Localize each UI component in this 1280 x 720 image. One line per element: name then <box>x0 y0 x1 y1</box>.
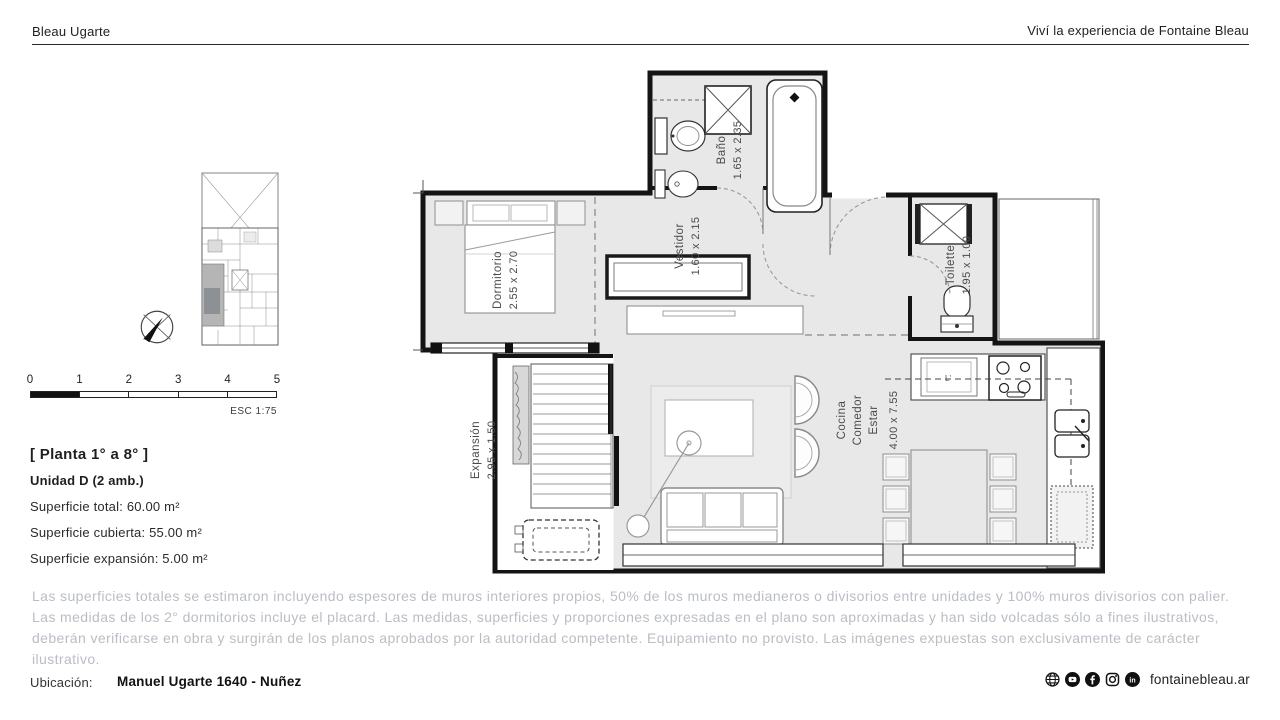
surface-total: Superficie total: 60.00 m² <box>30 499 180 514</box>
linkedin-icon[interactable]: in <box>1125 672 1140 687</box>
scale-tick-1: 1 <box>76 374 82 386</box>
dining-table <box>911 450 987 550</box>
dims-vestidor: 1.60 x 2.15 <box>690 217 702 276</box>
dims-toilette: 1.95 x 1.00 <box>961 236 973 295</box>
brand-name: Bleau Ugarte <box>32 24 110 39</box>
scale-tick-3: 3 <box>175 374 181 386</box>
instagram-icon[interactable] <box>1105 672 1120 687</box>
floor-plan: L' <box>405 58 1105 578</box>
pantry-cabinet <box>1051 486 1093 548</box>
scale-bar: 0 1 2 3 4 5 ESC 1:75 <box>30 374 277 417</box>
compass-icon <box>136 306 178 348</box>
palier-hall <box>999 199 1099 339</box>
scale-bar-numbers: 0 1 2 3 4 5 <box>30 374 277 388</box>
page: Bleau Ugarte Viví la experiencia de Font… <box>0 0 1280 720</box>
bedroom-window <box>431 343 599 353</box>
planter <box>513 366 529 464</box>
sideboard <box>627 306 803 334</box>
label-vestidor: Vestidor <box>674 223 686 269</box>
website-url[interactable]: fontainebleau.ar <box>1150 672 1250 687</box>
location-label: Ubicación: <box>30 675 93 690</box>
header-tagline: Viví la experiencia de Fontaine Bleau <box>1027 23 1249 38</box>
kitchen-sink-cabinet: L' <box>921 358 977 396</box>
living-windows <box>623 544 1075 566</box>
scale-tick-5: 5 <box>274 374 280 386</box>
ac-unit <box>515 520 599 560</box>
expansion-balcony <box>497 354 619 570</box>
toilet <box>655 118 705 154</box>
shower-sink <box>705 86 751 134</box>
floor-range-title: [ Planta 1° a 8° ] <box>30 446 148 463</box>
scale-bar-ruler <box>30 391 277 398</box>
svg-text:in: in <box>1129 677 1135 684</box>
dims-dormitorio: 2.55 x 2.70 <box>508 251 520 310</box>
label-dormitorio: Dormitorio <box>492 251 504 309</box>
bidet <box>655 170 698 198</box>
scale-tick-4: 4 <box>224 374 230 386</box>
unit-title: Unidad D (2 amb.) <box>30 473 144 488</box>
sofa <box>661 488 783 546</box>
key-plan-thumbnail <box>188 170 288 348</box>
bathtub <box>767 80 822 212</box>
scale-esc-label: ESC 1:75 <box>30 406 277 417</box>
label-expansion: Expansión <box>470 421 482 479</box>
website-icon[interactable] <box>1045 672 1060 687</box>
label-comedor: Comedor <box>852 395 864 446</box>
scale-tick-2: 2 <box>126 374 132 386</box>
label-banio: Baño <box>716 136 728 165</box>
youtube-icon[interactable] <box>1065 672 1080 687</box>
nightstand-right <box>557 201 585 225</box>
label-cocina: Cocina <box>836 401 848 440</box>
social-links: in fontainebleau.ar <box>1045 672 1250 687</box>
dims-banio: 1.65 x 2.35 <box>732 121 744 180</box>
dims-cocina: 4.00 x 7.55 <box>888 391 900 450</box>
label-toilette: Toilette <box>945 245 957 285</box>
stove <box>989 356 1041 400</box>
scale-tick-0: 0 <box>27 374 33 386</box>
legal-disclaimer: Las superficies totales se estimaron inc… <box>32 586 1252 670</box>
dims-expansion: 2.95 x 1.50 <box>486 421 498 480</box>
label-estar: Estar <box>868 405 880 434</box>
location-address: Manuel Ugarte 1640 - Nuñez <box>117 674 302 689</box>
header-divider <box>32 44 1249 45</box>
surface-covered: Superficie cubierta: 55.00 m² <box>30 525 202 540</box>
facebook-icon[interactable] <box>1085 672 1100 687</box>
nightstand-left <box>435 201 463 225</box>
surface-expansion: Superficie expansión: 5.00 m² <box>30 551 208 566</box>
